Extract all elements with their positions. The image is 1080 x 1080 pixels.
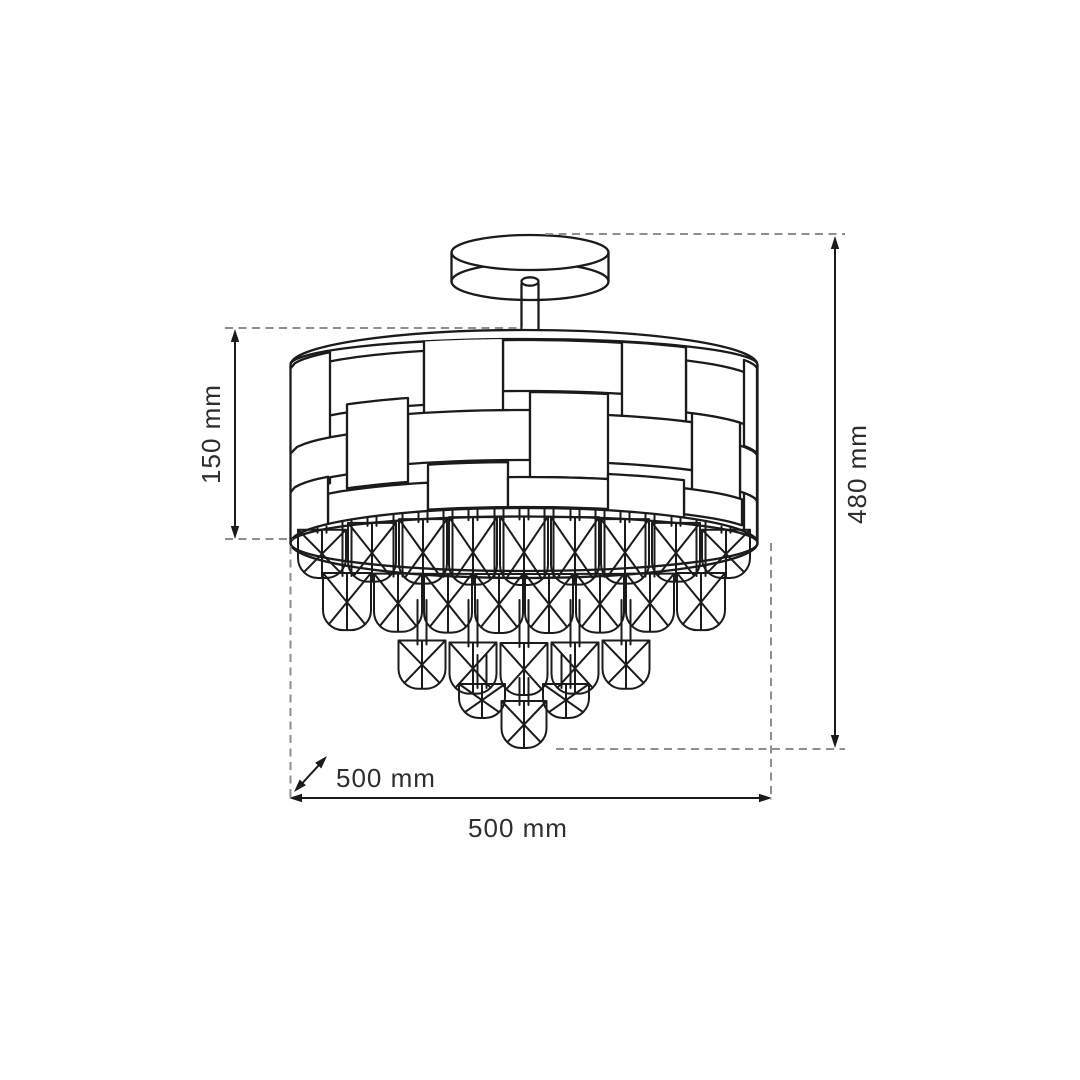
dimension-shade-height: 150 mm [196, 329, 239, 539]
ceiling-canopy [452, 235, 609, 300]
crystal-drop [543, 684, 589, 718]
stem-joint [522, 277, 539, 285]
crystal-drop [501, 643, 548, 695]
crystal-drop [502, 701, 547, 748]
crystal-drop [450, 642, 497, 693]
chandelier-dimension-diagram: 150 mm 480 mm 500 mm 500 mm [0, 0, 1080, 1080]
weave-panel-horizontal [503, 340, 622, 394]
stem-rod [522, 284, 539, 336]
crystal-drop [677, 573, 725, 630]
dimension-label-total-height: 480 mm [842, 424, 872, 524]
crystal-drop [603, 640, 650, 688]
weave-panel-horizontal [596, 415, 692, 471]
dimension-label-shade-height: 150 mm [196, 384, 226, 484]
dimension-label-depth: 500 mm [336, 763, 436, 793]
weave-panel-horizontal [428, 462, 508, 510]
crystal-drop [459, 684, 505, 718]
suspension-stem [522, 277, 539, 336]
crystal-drop [626, 574, 674, 632]
crystal-cascade [298, 509, 750, 748]
dimension-total-height: 480 mm [831, 236, 872, 748]
weave-panel-vertical [530, 392, 608, 479]
crystal-drop [323, 573, 371, 630]
crystal-drop [374, 574, 422, 632]
dimension-label-width: 500 mm [468, 813, 568, 843]
crystal-drop [424, 574, 472, 633]
weave-panel-horizontal [740, 446, 757, 501]
dimension-depth: 500 mm [294, 756, 436, 793]
canopy-top-edge [452, 235, 609, 270]
crystal-drop [525, 574, 573, 633]
dimension-width: 500 mm [289, 794, 772, 843]
crystal-drop [475, 574, 523, 633]
weave-panel-vertical [424, 337, 503, 415]
crystal-drop [399, 640, 446, 688]
weave-panel-vertical [347, 398, 408, 488]
technical-drawing-canvas: 150 mm 480 mm 500 mm 500 mm [0, 0, 1080, 1080]
weave-panel-vertical [744, 360, 757, 454]
weave-panel-horizontal [408, 410, 530, 464]
crystal-drop [552, 642, 599, 693]
crystal-drop [576, 574, 624, 633]
